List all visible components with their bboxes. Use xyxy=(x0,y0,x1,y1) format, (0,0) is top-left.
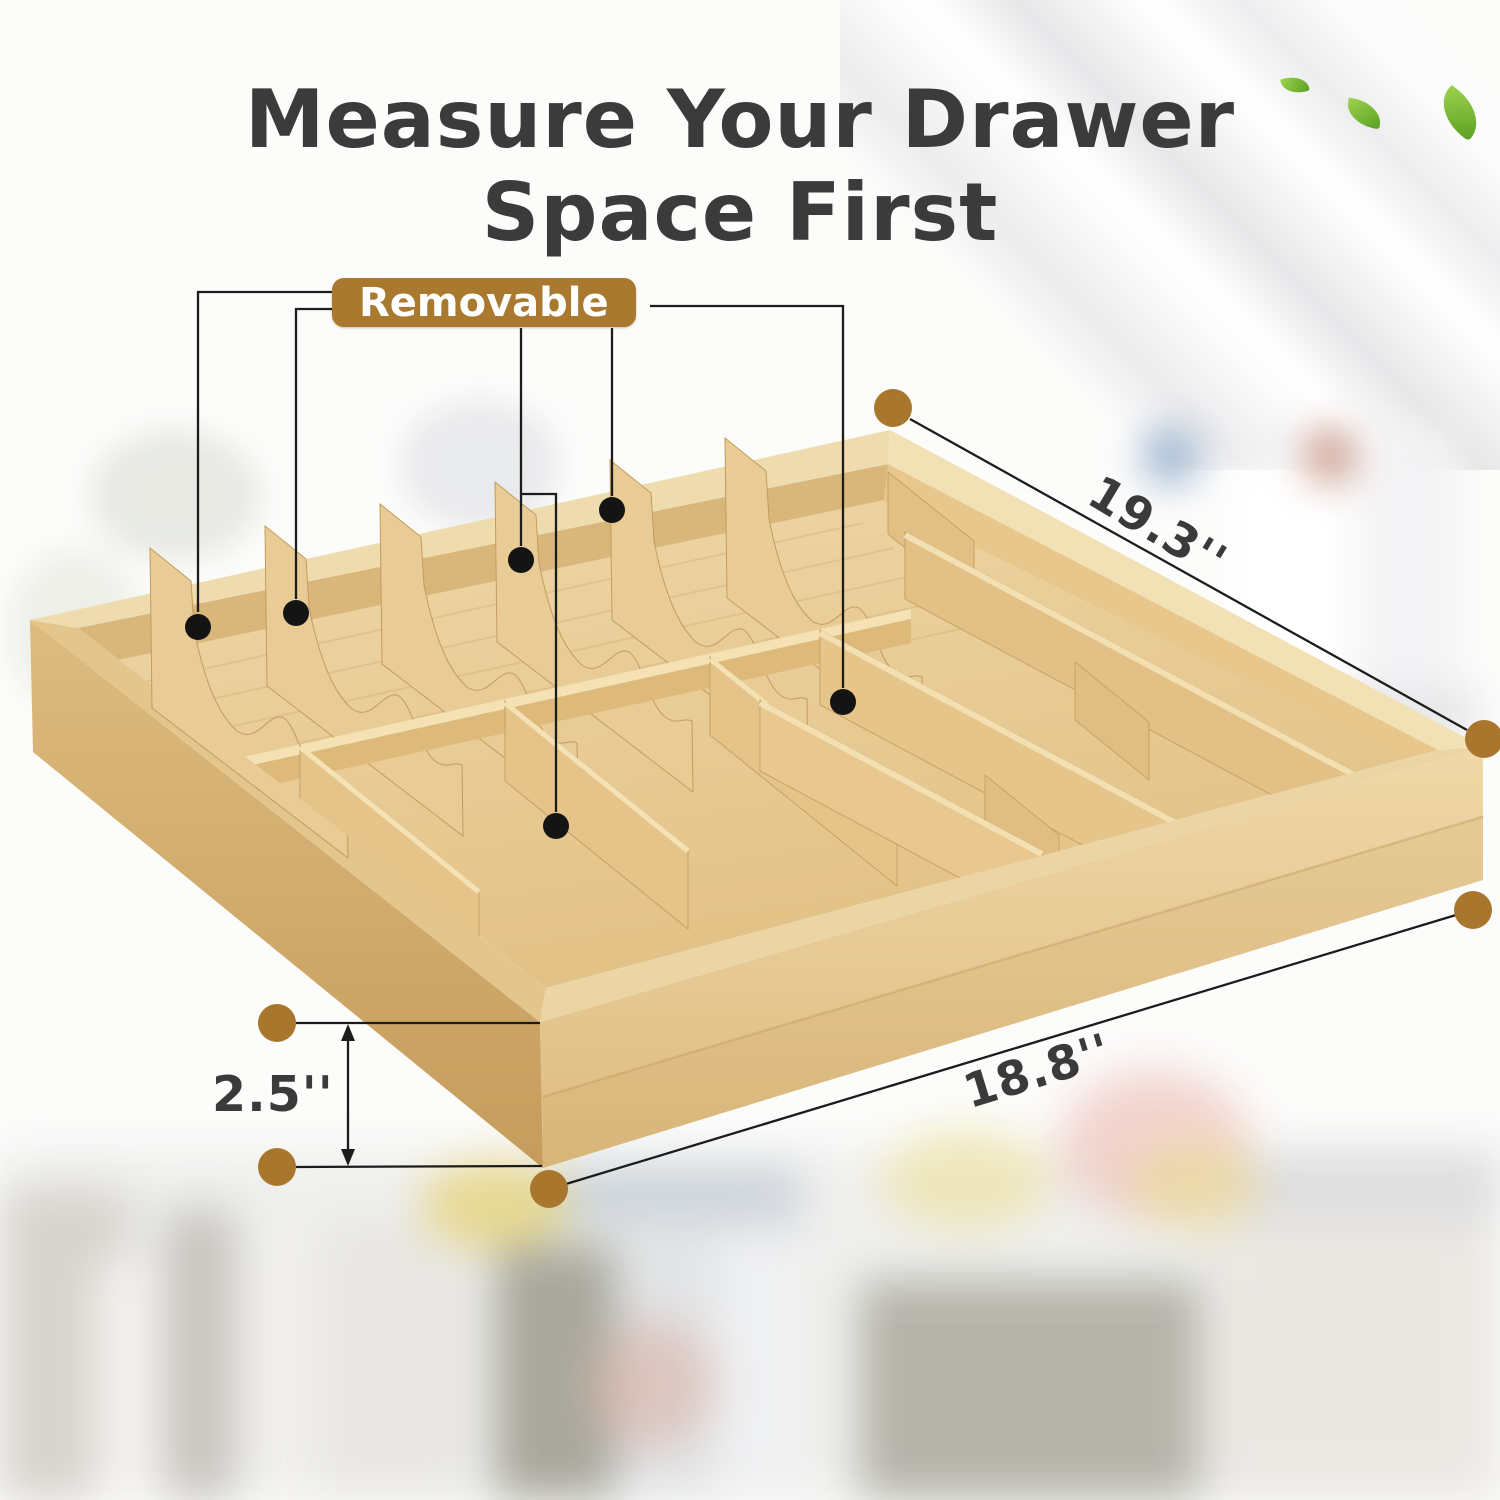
dimension-label-height: 2.5'' xyxy=(212,1066,334,1123)
background-blur-left xyxy=(0,380,620,710)
removable-badge-label: Removable xyxy=(359,280,609,326)
title-line-2: Space First xyxy=(0,167,1480,260)
page-title: Measure Your Drawer Space First xyxy=(0,74,1480,260)
product-infographic: Measure Your Drawer Space First Removabl… xyxy=(0,0,1500,1500)
callout-line xyxy=(650,306,843,688)
title-line-1: Measure Your Drawer xyxy=(0,74,1480,167)
background-blur-right xyxy=(1080,380,1500,780)
background-kitchen-blur xyxy=(0,1150,1500,1500)
removable-badge: Removable xyxy=(332,278,636,327)
